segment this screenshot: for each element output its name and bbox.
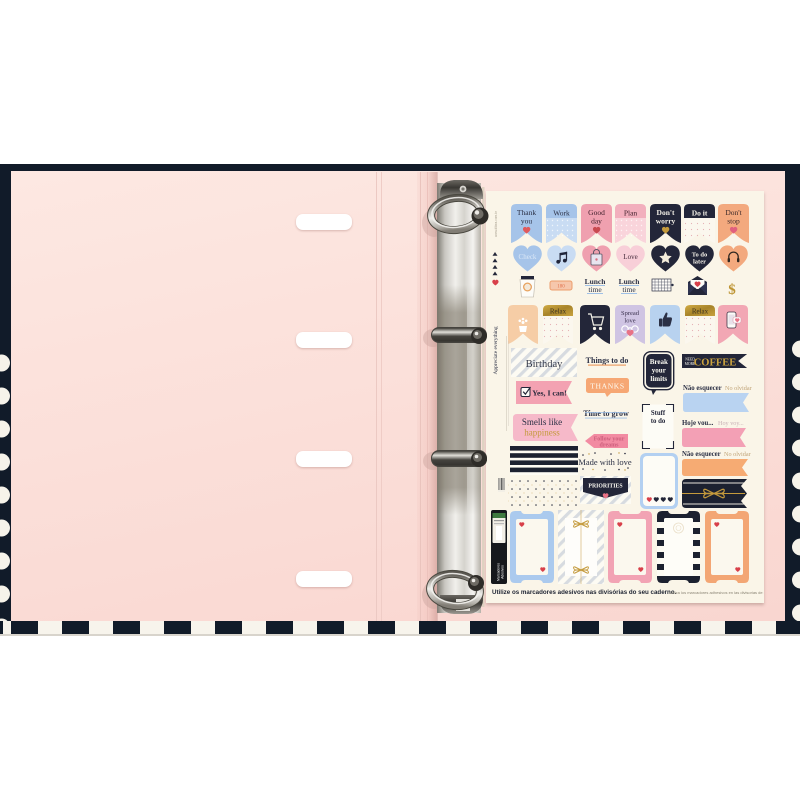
- svg-text:happiness: happiness: [524, 428, 560, 438]
- svg-text:To do: To do: [692, 252, 707, 259]
- svg-text:worry: worry: [656, 217, 676, 226]
- svg-text:Smells like: Smells like: [522, 417, 562, 427]
- svg-text:Check: Check: [519, 253, 537, 261]
- svg-text:180: 180: [557, 285, 565, 290]
- svg-text:to do: to do: [651, 418, 666, 425]
- svg-text:Work: Work: [553, 209, 570, 218]
- svg-text:Utiliza los marcadores adhesiv: Utiliza los marcadores adhesivos en las …: [669, 590, 764, 595]
- svg-text:Break: Break: [650, 358, 668, 366]
- svg-text:Hoje vou...: Hoje vou...: [682, 420, 714, 427]
- svg-text:Time to grow: Time to grow: [583, 409, 629, 418]
- svg-text:dreams: dreams: [600, 443, 620, 449]
- svg-text:Plan: Plan: [624, 209, 638, 218]
- svg-text:time: time: [622, 285, 636, 294]
- svg-text:THANKS: THANKS: [590, 382, 624, 391]
- svg-text:day: day: [591, 217, 602, 226]
- svg-text:love: love: [624, 318, 635, 325]
- svg-text:you: you: [521, 217, 533, 226]
- svg-text:PRIORITIES: PRIORITIES: [588, 484, 622, 490]
- svg-text:Things to do: Things to do: [586, 356, 629, 365]
- svg-text:COFFEE: COFFEE: [694, 357, 737, 368]
- svg-text:Stuff: Stuff: [651, 410, 666, 417]
- svg-text:Birthday: Birthday: [526, 359, 563, 370]
- svg-text:$: $: [728, 282, 736, 298]
- svg-text:Yes, I can!: Yes, I can!: [532, 389, 566, 398]
- svg-text:Não esquecer: Não esquecer: [683, 385, 722, 392]
- svg-text:limits: limits: [650, 375, 667, 383]
- svg-text:later: later: [693, 259, 706, 266]
- svg-text:Relax: Relax: [692, 308, 709, 316]
- svg-text:stop: stop: [727, 217, 740, 226]
- svg-text:Adesivos: Adesivos: [501, 565, 505, 579]
- svg-text:Utilize os marcadores adesivos: Utilize os marcadores adesivos nas divis…: [492, 589, 677, 596]
- svg-text:Made with love: Made with love: [578, 457, 632, 467]
- svg-text:your: your: [652, 367, 666, 375]
- svg-text:time: time: [588, 285, 602, 294]
- svg-text:Não esquecer: Não esquecer: [682, 451, 721, 458]
- svg-text:No olvidar: No olvidar: [724, 451, 751, 458]
- svg-text:Hoy voy...: Hoy voy...: [718, 420, 744, 427]
- svg-text:No olvidar: No olvidar: [725, 385, 752, 392]
- svg-text:Love: Love: [623, 253, 637, 261]
- svg-text:Spread: Spread: [621, 310, 640, 317]
- svg-text:Relax: Relax: [550, 308, 567, 316]
- svg-text:Do it: Do it: [692, 209, 708, 218]
